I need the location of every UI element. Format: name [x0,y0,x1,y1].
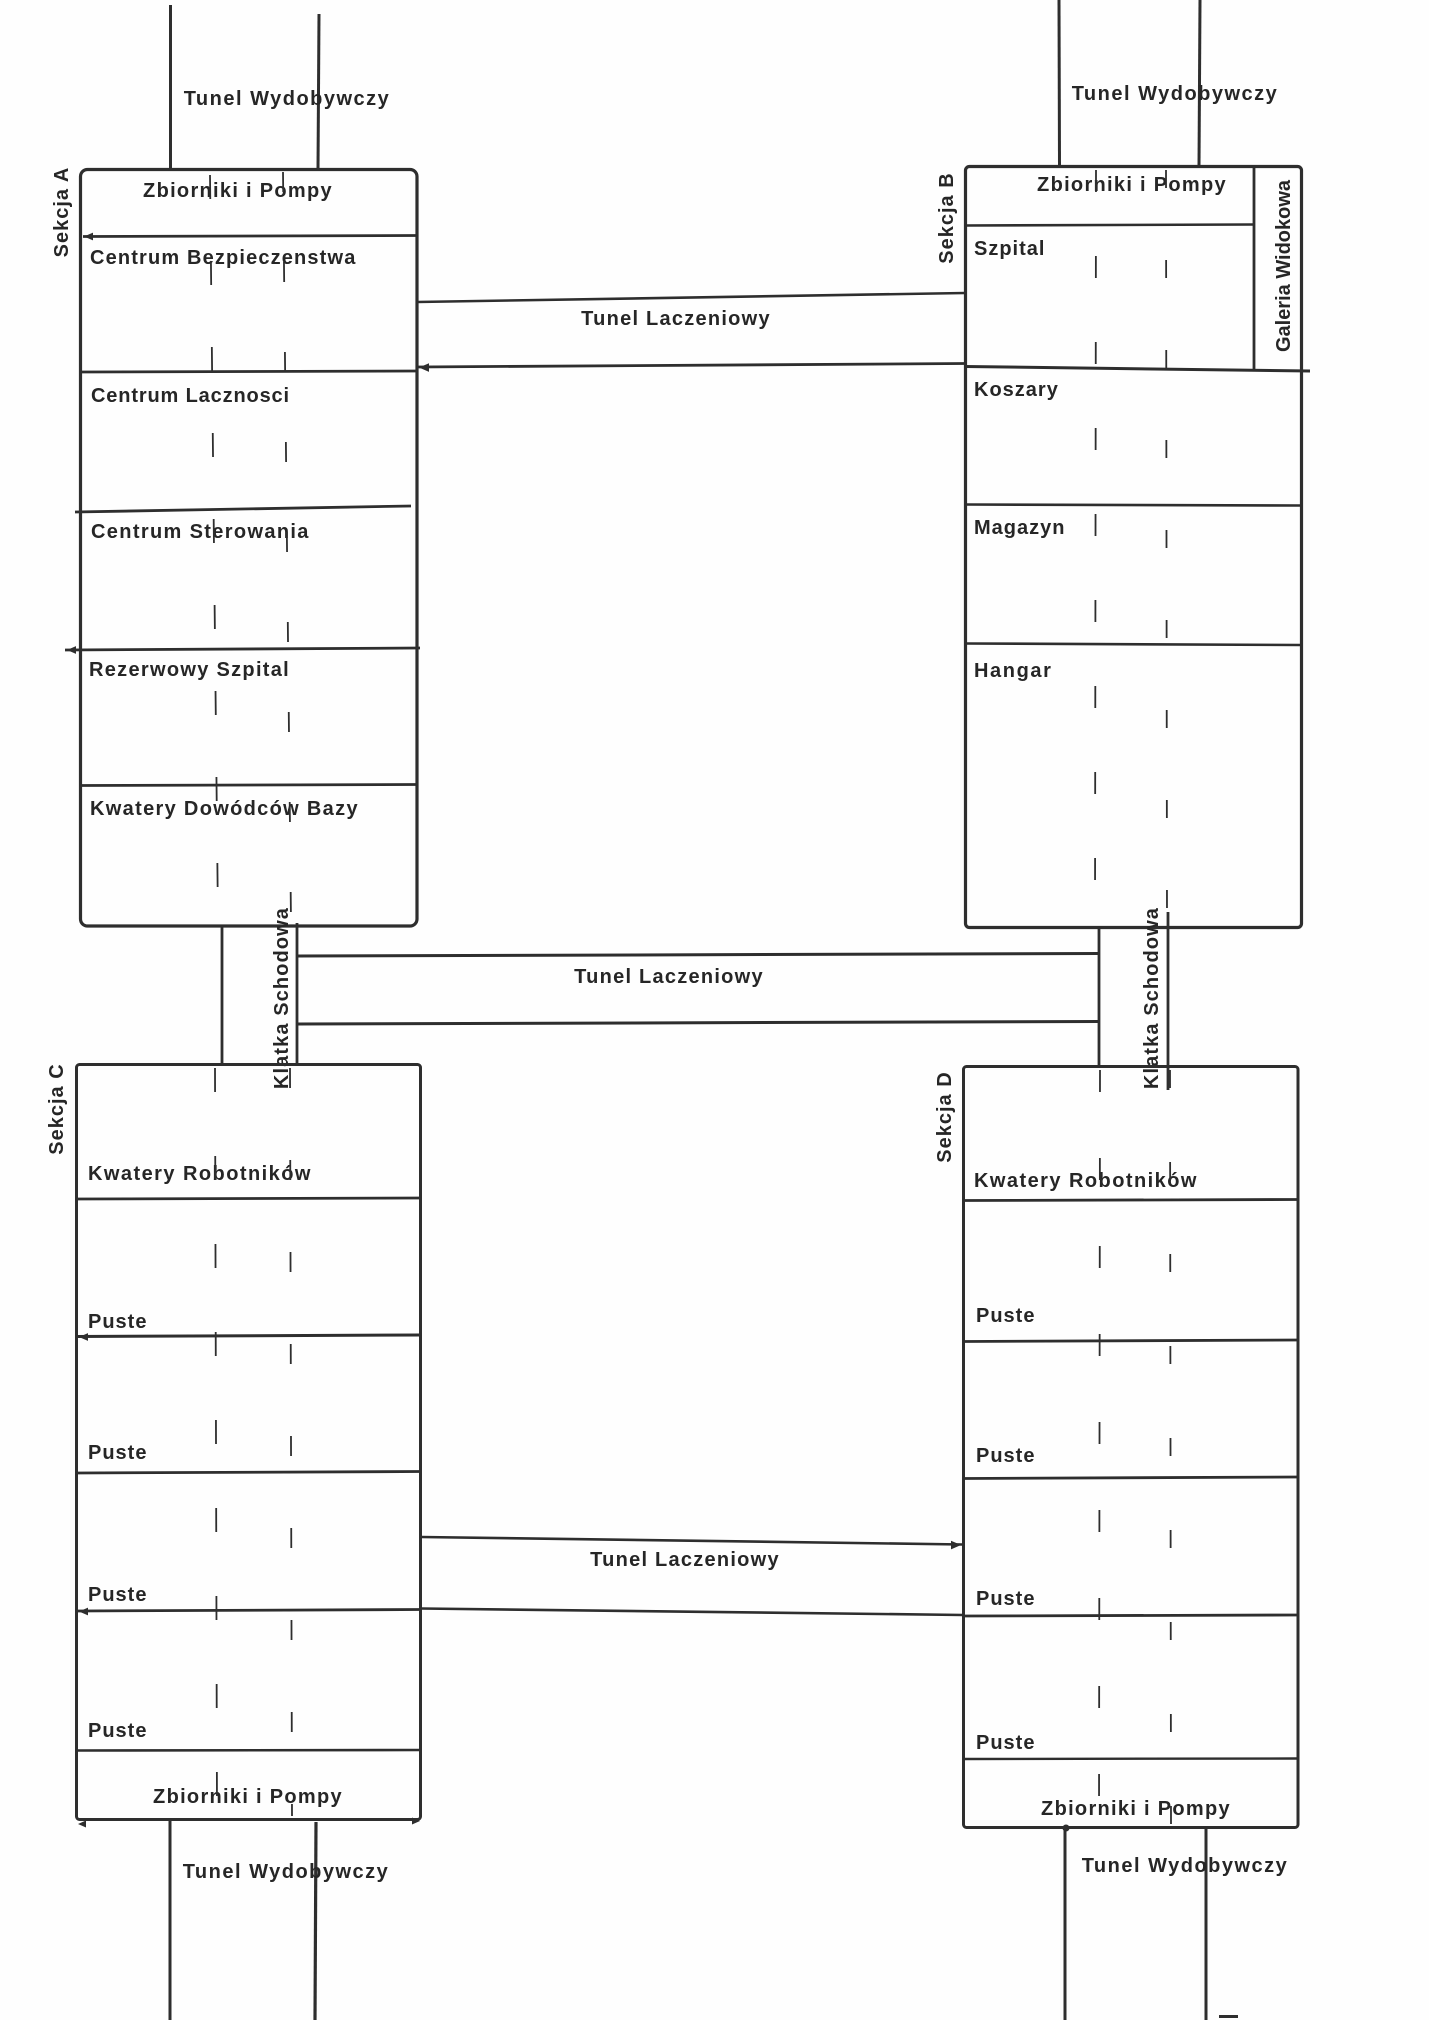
svg-text:Kwatery Dowódców Bazy: Kwatery Dowódców Bazy [90,798,359,820]
svg-text:Galeria Widokowa: Galeria Widokowa [1273,179,1295,352]
svg-text:Puste: Puste [88,1442,147,1464]
svg-text:Tunel Wydobywczy: Tunel Wydobywczy [183,1861,390,1883]
svg-text:Tunel Wydobywczy: Tunel Wydobywczy [184,88,391,110]
svg-text:Hangar: Hangar [974,660,1053,682]
svg-text:Tunel Laczeniowy: Tunel Laczeniowy [574,966,764,988]
svg-text:Puste: Puste [976,1445,1035,1467]
svg-text:Zbiorniki i Pompy: Zbiorniki i Pompy [1037,174,1227,196]
svg-text:Puste: Puste [88,1720,147,1742]
svg-text:Tunel Laczeniowy: Tunel Laczeniowy [590,1549,780,1571]
svg-text:Sekcja B: Sekcja B [936,172,958,263]
svg-text:Sekcja D: Sekcja D [934,1071,956,1162]
svg-text:Sekcja C: Sekcja C [46,1063,68,1154]
svg-text:Rezerwowy Szpital: Rezerwowy Szpital [89,659,290,681]
svg-text:Magazyn: Magazyn [974,517,1065,539]
svg-text:Puste: Puste [88,1584,147,1606]
svg-text:Tunel Laczeniowy: Tunel Laczeniowy [581,308,771,330]
svg-text:Puste: Puste [88,1311,147,1333]
svg-text:Puste: Puste [976,1305,1035,1327]
svg-text:Klatka Schodowa: Klatka Schodowa [271,907,293,1089]
svg-text:Zbiorniki i Pompy: Zbiorniki i Pompy [1041,1798,1231,1820]
svg-text:Koszary: Koszary [974,379,1059,401]
svg-text:Klatka Schodowa: Klatka Schodowa [1141,907,1163,1089]
svg-text:Kwatery Robotników: Kwatery Robotników [974,1170,1198,1192]
svg-text:Zbiorniki i Pompy: Zbiorniki i Pompy [143,180,333,202]
svg-text:Centrum Bezpieczenstwa: Centrum Bezpieczenstwa [90,247,356,269]
svg-text:Centrum Sterowania: Centrum Sterowania [91,521,310,543]
svg-text:Sekcja A: Sekcja A [51,167,73,258]
svg-text:Szpital: Szpital [974,238,1045,260]
svg-text:Centrum Lacznosci: Centrum Lacznosci [91,385,290,407]
svg-text:Puste: Puste [976,1588,1035,1610]
svg-text:Puste: Puste [976,1732,1035,1754]
svg-text:Tunel Wydobywczy: Tunel Wydobywczy [1072,83,1279,105]
svg-text:Tunel Wydobywczy: Tunel Wydobywczy [1082,1855,1289,1877]
svg-text:Kwatery Robotników: Kwatery Robotników [88,1163,312,1185]
svg-text:Zbiorniki i Pompy: Zbiorniki i Pompy [153,1786,343,1808]
